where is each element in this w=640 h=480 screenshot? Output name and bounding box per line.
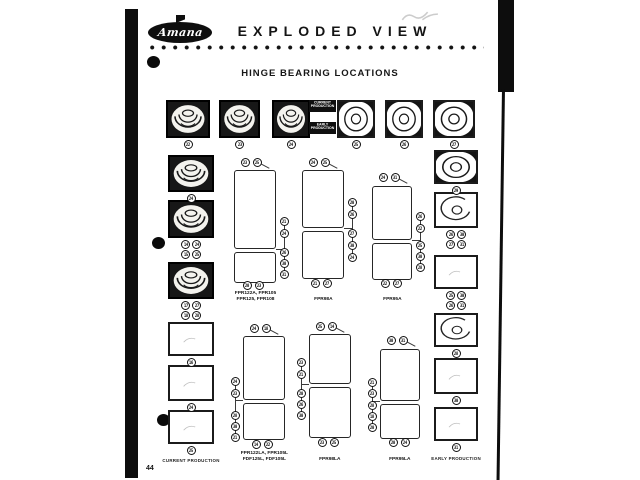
callout-number: 24 [187, 194, 196, 203]
left-binding-bar [125, 9, 138, 478]
callout-number: 25 [192, 250, 201, 259]
right-page-edge-line [497, 88, 505, 480]
callout-number: 24 [192, 240, 201, 249]
callout-number: 24 [187, 403, 196, 412]
callout-number: 28 [416, 263, 425, 272]
model-label-text: FPR122A, FPR105 FPR125, FPR108 [234, 290, 275, 302]
callout-number: 22 [264, 440, 273, 449]
bearing-box [434, 255, 478, 289]
callout-number: 30 [297, 411, 306, 420]
fridge-top-door [234, 170, 276, 249]
bearing-box [434, 150, 478, 184]
callout-number: 14 [252, 440, 261, 449]
early-production-tag: EARLY PRODUCTION [309, 122, 336, 134]
callout-number: 23 [368, 389, 377, 398]
callout-number: 20 [243, 281, 252, 290]
callout-number: 20 [389, 438, 398, 447]
callout-number: 30 [280, 259, 289, 268]
fridge-bottom-door [372, 243, 412, 280]
callout-number: 25 [316, 322, 325, 331]
callout-number: 31 [280, 270, 289, 279]
callout-number: 27 [446, 240, 455, 249]
bearing-box [168, 200, 214, 238]
callout-number: 30 [416, 252, 425, 261]
callout-number: 30 [452, 396, 461, 405]
model-label-text: FPR98A [314, 296, 332, 302]
callout-number: 27 [323, 279, 332, 288]
bearing-box [434, 407, 478, 441]
model-label: FPR95A [342, 290, 442, 308]
callout-number: 25 [187, 446, 196, 455]
callout-number: 25 [330, 438, 339, 447]
callout-number: 25 [446, 291, 455, 300]
callout-number: 26 [280, 248, 289, 257]
callout-number: 16 [187, 358, 196, 367]
fridge-top-door [372, 186, 412, 240]
callout-number: 22 [184, 140, 193, 149]
bearing-box [168, 410, 214, 444]
callout-number: 30 [457, 291, 466, 300]
callout-number: 28 [368, 401, 377, 410]
bearing-box [168, 365, 214, 401]
bearing-box [433, 100, 475, 138]
bearing-box [434, 192, 478, 228]
callout-number: 18 [368, 412, 377, 421]
callout-number: 26 [348, 210, 357, 219]
callout-number: 14 [328, 322, 337, 331]
callout-number: 26 [400, 140, 409, 149]
callout-number: 25 [416, 241, 425, 250]
callout-number: 27 [450, 140, 459, 149]
callout-number: 23 [255, 281, 264, 290]
callout-number: 25 [253, 158, 262, 167]
callout-number: 21 [311, 279, 320, 288]
leader-line [235, 400, 243, 401]
callout-number: 18 [262, 324, 271, 333]
fridge-top-door [309, 334, 351, 384]
callout-number: 31 [399, 336, 408, 345]
callout-number: 28 [192, 311, 201, 320]
bearing-box [434, 358, 478, 394]
callout-number: 26 [446, 301, 455, 310]
callout-number: 25 [321, 158, 330, 167]
callout-number: 23 [318, 438, 327, 447]
bearing-box [166, 100, 210, 138]
callout-number: 28 [231, 411, 240, 420]
callout-number: 31 [457, 301, 466, 310]
bearing-box [385, 100, 423, 138]
fridge-top-door [243, 336, 285, 400]
right-page-edge-top [498, 0, 514, 92]
fridge-bottom-door [309, 387, 351, 438]
callout-number: 22 [381, 279, 390, 288]
fridge-bottom-door [380, 404, 420, 439]
callout-number: 18 [181, 311, 190, 320]
bearing-box [337, 100, 375, 138]
callout-number: 29 [452, 186, 461, 195]
callout-number: 24 [309, 158, 318, 167]
callout-number: 15 [181, 250, 190, 259]
fridge-top-door [380, 349, 420, 401]
model-label-text: FPR95A [383, 296, 401, 302]
callout-number: 23 [235, 140, 244, 149]
model-label: FPR95LA [350, 450, 450, 468]
fridge-bottom-door [234, 252, 276, 283]
callout-number: 30 [231, 422, 240, 431]
bearing-box [272, 100, 310, 138]
callout-number: 21 [280, 217, 289, 226]
callout-number: 27 [393, 279, 402, 288]
callout-number: 26 [297, 400, 306, 409]
model-label-text: FPR98LA [319, 456, 340, 462]
bearing-box [219, 100, 260, 138]
callout-number: 27 [348, 229, 357, 238]
callout-number: 21 [368, 378, 377, 387]
callout-number: 24 [287, 140, 296, 149]
callout-number: 24 [348, 253, 357, 262]
callout-number: 23 [231, 389, 240, 398]
callout-number: 30 [348, 241, 357, 250]
fridge-bottom-door [302, 231, 344, 279]
callout-number: 24 [280, 229, 289, 238]
callout-number: 21 [297, 370, 306, 379]
dotted-divider [150, 44, 484, 51]
callout-number: 21 [231, 433, 240, 442]
fridge-bottom-door [243, 403, 285, 440]
callout-number: 20 [348, 198, 357, 207]
scanned-manual-page: Amana EXPLODED VIEW HINGE BEARING LOCATI… [0, 0, 640, 480]
section-title: HINGE BEARING LOCATIONS [235, 68, 405, 79]
callout-number: 27 [192, 301, 201, 310]
leader-line [301, 384, 309, 385]
callout-number: 26 [416, 212, 425, 221]
callout-number: 31 [452, 443, 461, 452]
fridge-top-door [302, 170, 344, 228]
model-label-text: FPR95LA [389, 456, 410, 462]
callout-number: 25 [352, 140, 361, 149]
callout-number: 28 [452, 349, 461, 358]
callout-number: 24 [379, 173, 388, 182]
callout-number: 26 [446, 230, 455, 239]
punch-hole [147, 56, 160, 68]
callout-number: 20 [297, 389, 306, 398]
amana-logo: Amana [148, 22, 212, 43]
bearing-box [168, 322, 214, 356]
callout-number: 22 [416, 224, 425, 233]
callout-number: 30 [457, 230, 466, 239]
bearing-box [168, 155, 214, 192]
callout-number: 24 [401, 438, 410, 447]
callout-number: 23 [241, 158, 250, 167]
bearing-box [434, 313, 478, 347]
current-production-tag: CURRENT PRODUCTION [309, 100, 336, 112]
page-number: 44 [146, 465, 154, 472]
callout-number: 17 [181, 301, 190, 310]
callout-number: 23 [297, 358, 306, 367]
callout-number: 14 [181, 240, 190, 249]
callout-number: 31 [457, 240, 466, 249]
callout-number: 24 [250, 324, 259, 333]
callout-number: 30 [387, 336, 396, 345]
callout-number: 24 [231, 377, 240, 386]
page-title: EXPLODED VIEW [225, 23, 445, 39]
callout-number: 20 [368, 423, 377, 432]
punch-hole [152, 237, 165, 249]
callout-number: 31 [391, 173, 400, 182]
